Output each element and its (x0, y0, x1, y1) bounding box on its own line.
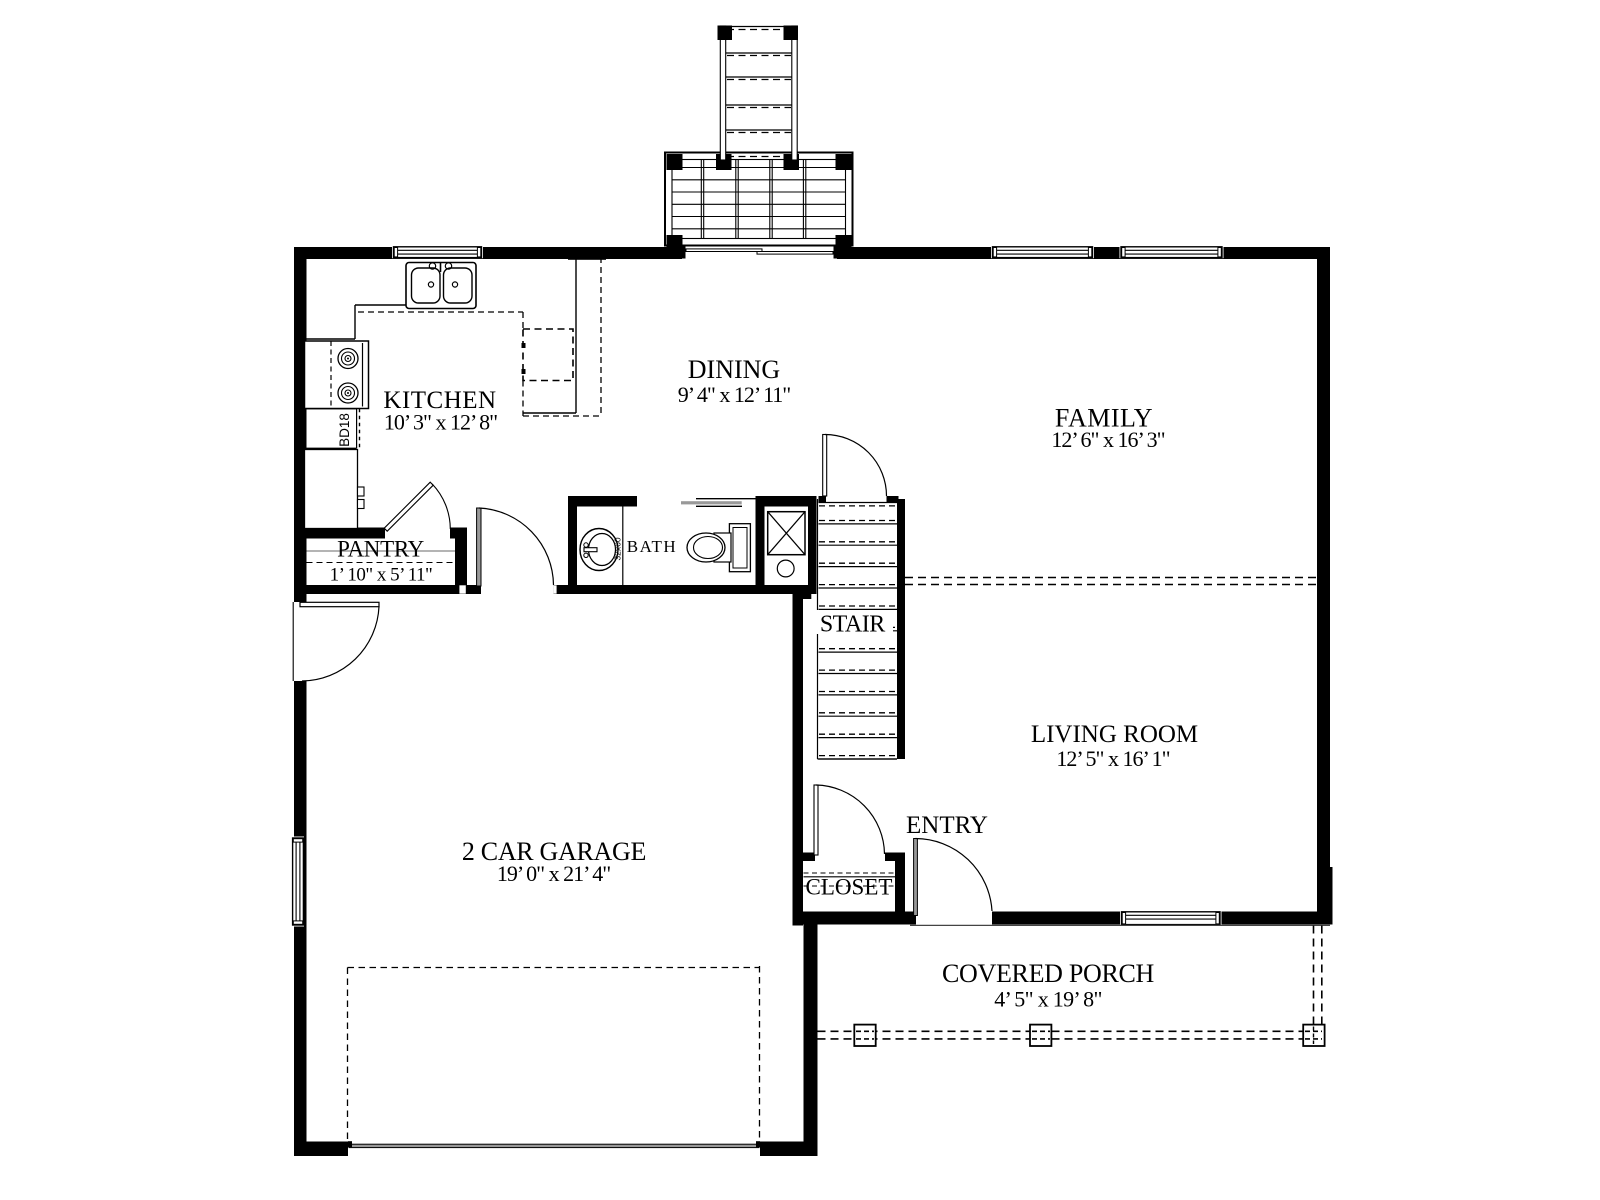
svg-text:1’ 10" x 5’ 11": 1’ 10" x 5’ 11" (330, 565, 433, 586)
svg-text:PANTRY: PANTRY (337, 537, 425, 562)
svg-text:COVERED PORCH: COVERED PORCH (942, 959, 1155, 988)
svg-text:STAIR: STAIR (820, 612, 885, 638)
svg-text:ENTRY: ENTRY (906, 812, 988, 839)
svg-text:12’ 5" x 16’ 1": 12’ 5" x 16’ 1" (1056, 746, 1169, 771)
svg-text:4’ 5" x 19’ 8": 4’ 5" x 19’ 8" (994, 987, 1102, 1012)
svg-text:10’ 3" x 12’ 8": 10’ 3" x 12’ 8" (384, 410, 497, 435)
svg-text:12’ 6" x 16’ 3": 12’ 6" x 16’ 3" (1051, 427, 1164, 452)
svg-text:LIVING ROOM: LIVING ROOM (1031, 721, 1198, 748)
svg-text:BATH: BATH (627, 537, 677, 556)
svg-text:19’ 0" x 21’ 4": 19’ 0" x 21’ 4" (497, 861, 610, 886)
svg-text:9’ 4" x 12’ 11": 9’ 4" x 12’ 11" (678, 382, 791, 407)
svg-text:DINING: DINING (688, 355, 780, 384)
svg-text:BD18: BD18 (337, 413, 352, 447)
svg-text:CLOSET: CLOSET (806, 875, 893, 900)
svg-text:32x60: 32x60 (613, 537, 623, 560)
